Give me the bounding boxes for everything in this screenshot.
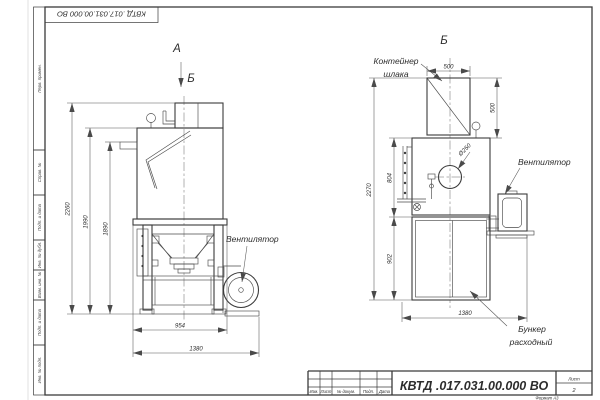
- container-callout-2: шлака: [383, 69, 409, 79]
- fan-b-callout: Вентилятор: [518, 157, 571, 167]
- support-frame: [140, 225, 226, 314]
- stamp-podp-data-1: Подп. и дата: [37, 203, 42, 231]
- dim-overall-width: 1380: [189, 347, 203, 353]
- dim-overall-width-b: 1380: [458, 311, 472, 317]
- fan-side: [486, 191, 534, 238]
- container-callout-1: Контейнер: [373, 56, 418, 66]
- drawing-designation: КВТД .017.031.00.000 ВО: [400, 379, 549, 393]
- filter-body-b: [412, 138, 490, 215]
- ladder: [403, 146, 412, 199]
- pressure-gauge-b: [472, 122, 480, 138]
- pressure-gauge: [147, 114, 156, 129]
- fan-callout: Вентилятор: [226, 234, 279, 244]
- bunker-callout-1: Бункер: [518, 324, 546, 334]
- top-stamp-text: КВТД .017.031.00.000 ВО: [57, 10, 146, 19]
- dim-base-width: 954: [175, 324, 186, 330]
- tb-sheet-label: Лист: [567, 377, 580, 382]
- tb-col-list: Лист: [320, 389, 332, 394]
- format-note: Формат А3: [536, 396, 560, 400]
- tb-col-dokum: № докум.: [337, 389, 355, 394]
- dim-total-height-b: 2270: [367, 183, 373, 198]
- tb-col-data: Дата: [378, 389, 391, 394]
- side-stamp-column: Перв. примен. Справ. № Подп. и дата Инв.…: [34, 7, 46, 395]
- body-flange: [133, 219, 227, 225]
- view-b-marker-label: Б: [187, 73, 195, 85]
- stamp-podp-data-2: Подп. и дата: [37, 308, 42, 336]
- view-front: А Б: [66, 43, 279, 357]
- dim-container-width: 500: [443, 65, 454, 71]
- view-side-b: Б Контейнер шлака Ø250: [367, 35, 571, 347]
- top-designation-stamp: КВТД .017.031.00.000 ВО: [45, 7, 158, 23]
- bunker-callout-2: расходный: [509, 337, 553, 347]
- slag-container: [427, 78, 470, 135]
- dimensions-side: 500 500 2270 804 902 1380: [367, 65, 527, 323]
- tb-col-izm: Изм.: [310, 389, 319, 394]
- dim-inlet-height: 1890: [104, 222, 110, 236]
- dim-body-height: 1990: [84, 215, 90, 229]
- elbow-pipe: [163, 111, 175, 124]
- dim-upper-height: 804: [388, 172, 394, 183]
- dim-nozzle-diameter: Ø250: [457, 143, 473, 159]
- tb-sheet-number: 2: [571, 388, 575, 394]
- stamp-perv-primen: Перв. примен.: [37, 64, 42, 93]
- stamp-inv-dubl: Инв. № дубл.: [37, 242, 42, 268]
- stamp-vzam-inv: Взам. инв. №: [37, 271, 42, 298]
- drawing-sheet: КВТД .017.031.00.000 ВО Перв. примен. Сп…: [0, 0, 600, 400]
- dimensions-front: 2260 1990 1890 954 1380: [66, 103, 260, 357]
- stamp-sprav-no: Справ. №: [37, 162, 42, 182]
- stamp-inv-podl: Инв. № подл.: [37, 357, 42, 384]
- view-b-title: Б: [440, 35, 448, 47]
- view-a-label: А: [172, 43, 181, 55]
- fan-front: [218, 266, 259, 316]
- dim-container-height: 500: [491, 102, 497, 113]
- engineering-drawing: КВТД .017.031.00.000 ВО Перв. примен. Сп…: [0, 0, 600, 400]
- outlet-plenum: [175, 103, 223, 128]
- fan-leader: [242, 246, 247, 282]
- dim-total-height: 2260: [66, 202, 72, 217]
- tb-col-podp: Подп.: [363, 389, 374, 394]
- bunker: [412, 217, 490, 300]
- dim-bunker-height: 902: [388, 253, 394, 264]
- inlet-stub: [120, 142, 137, 149]
- hopper: [152, 234, 214, 273]
- bunker-leader: [470, 291, 507, 326]
- fan-b-leader: [505, 168, 520, 194]
